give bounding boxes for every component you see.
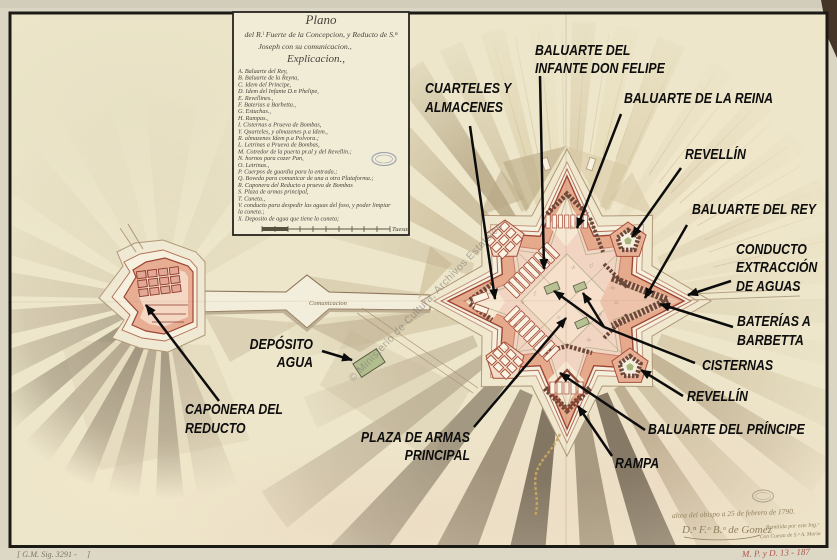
- svg-text:Joseph con su comunicacion.,: Joseph con su comunicacion.,: [258, 42, 351, 51]
- svg-text:21: 21: [547, 257, 552, 263]
- svg-text:Tuesas: Tuesas: [392, 226, 410, 233]
- svg-text:Explicacion.,: Explicacion.,: [286, 53, 345, 65]
- svg-text:[ G.M. Sig. 3291 - ]: [ G.M. Sig. 3291 - ]: [17, 550, 90, 559]
- svg-text:Plano: Plano: [304, 12, 337, 27]
- svg-text:del R.ˡ Fuerte de la Concepcio: del R.ˡ Fuerte de la Concepcion, y Reduc…: [245, 30, 398, 39]
- svg-text:X. Deposito de agua que tiene: X. Deposito de agua que tiene la cuneta;: [237, 215, 339, 222]
